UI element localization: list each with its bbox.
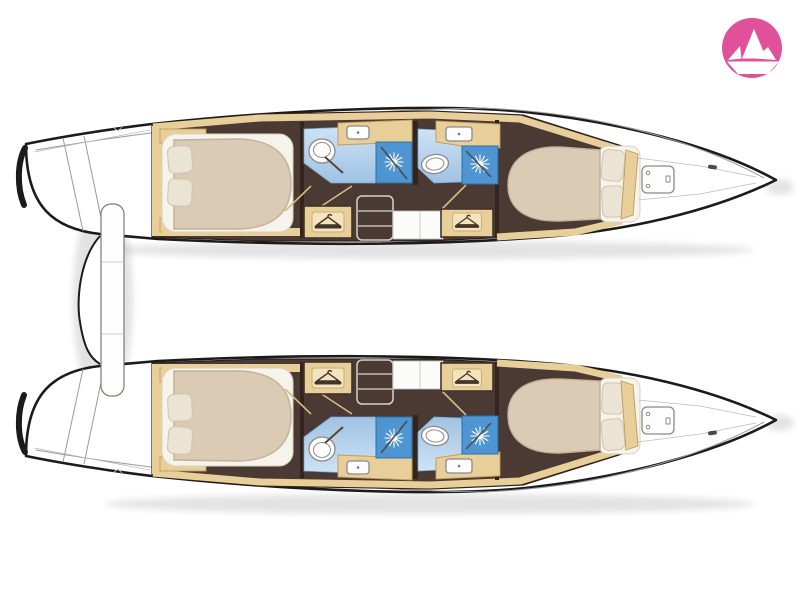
hull-starboard <box>19 356 776 492</box>
cockpit-bench <box>101 204 124 396</box>
bench-seat <box>101 204 124 396</box>
hull-starboard-interior <box>19 356 776 492</box>
floorplan-canvas <box>0 0 800 600</box>
hull-port <box>19 108 776 244</box>
catamaran-floorplan <box>0 0 800 600</box>
hull-shadow <box>105 494 755 514</box>
brand-logo <box>722 18 782 78</box>
hull-port-interior <box>19 108 776 244</box>
